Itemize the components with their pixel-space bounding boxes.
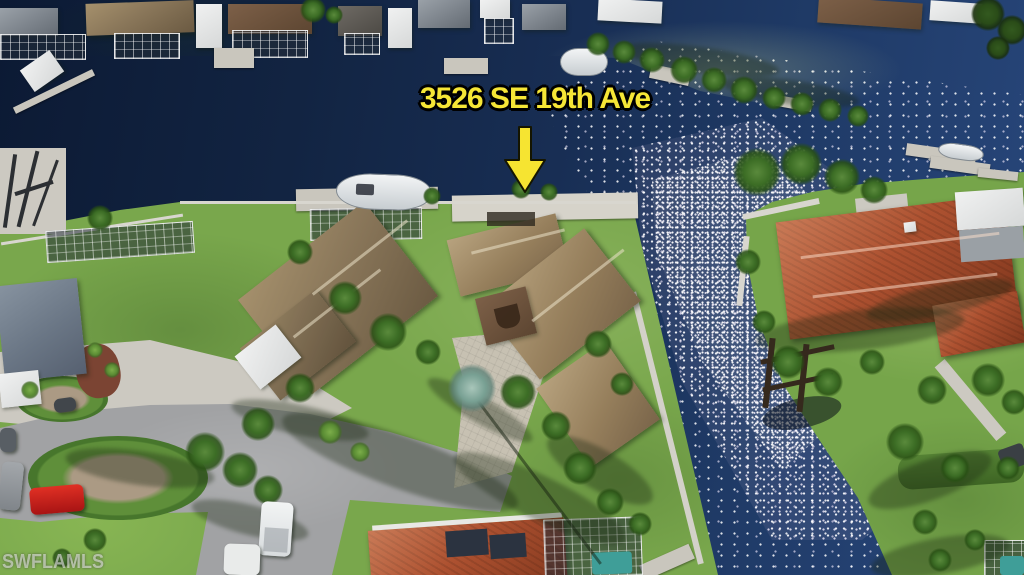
- palm-tree: [285, 373, 315, 403]
- palm-tree: [541, 411, 571, 441]
- palm-tree: [818, 98, 842, 122]
- palm-tree: [940, 453, 970, 483]
- palm-tree: [971, 363, 1005, 397]
- far-house: [196, 4, 222, 48]
- palm-tree: [369, 313, 407, 351]
- palm-tree: [847, 105, 869, 127]
- palm-tree: [886, 423, 924, 461]
- palm-tree: [185, 432, 225, 472]
- palm-tree: [912, 509, 938, 535]
- boat-windshield: [356, 184, 374, 196]
- palm-tree: [752, 310, 776, 334]
- palm-tree: [628, 512, 652, 536]
- palm-tree: [735, 249, 761, 275]
- palm-tree: [771, 345, 805, 379]
- far-house: [597, 0, 662, 24]
- far-house: [480, 0, 510, 18]
- far-house: [388, 8, 412, 48]
- palm-tree: [328, 281, 362, 315]
- white-van: [223, 543, 260, 575]
- palm-tree: [563, 451, 597, 485]
- location-arrow-icon: [503, 126, 547, 194]
- palm-tree: [964, 529, 986, 551]
- palm-tree: [500, 374, 536, 410]
- gray-roof-section: [959, 226, 1024, 262]
- palm-tree: [448, 364, 496, 412]
- far-house-roof: [418, 0, 470, 28]
- solar-panel: [445, 529, 489, 558]
- pool-screen-enclosure: [344, 33, 380, 55]
- palm-tree: [762, 86, 786, 110]
- dock: [444, 58, 488, 74]
- palm-tree: [859, 349, 885, 375]
- palm-tree: [670, 56, 698, 84]
- palm-tree: [824, 159, 860, 195]
- aerial-photo: 3526 SE 19th Ave SWFLAMLS: [0, 0, 1024, 575]
- palm-tree: [87, 205, 113, 231]
- palm-tree: [813, 367, 843, 397]
- swimming-pool: [1000, 556, 1024, 575]
- far-house-roof: [0, 8, 58, 36]
- truck-bed: [263, 527, 289, 553]
- white-roof-house: [955, 188, 1024, 231]
- palm-tree: [415, 339, 441, 365]
- far-house-roof: [85, 0, 194, 36]
- palm-tree: [730, 76, 758, 104]
- pool-screen-enclosure: [484, 18, 514, 44]
- shrub: [104, 362, 120, 378]
- palm-tree: [222, 452, 258, 488]
- far-house-roof: [522, 4, 566, 30]
- gray-roof-house: [0, 278, 87, 382]
- palm-tree: [586, 32, 610, 56]
- boat-lift: [214, 48, 254, 68]
- palm-tree: [596, 488, 624, 516]
- address-label: 3526 SE 19th Ave: [410, 84, 660, 114]
- palm-tree: [733, 148, 781, 196]
- palm-tree: [780, 143, 822, 185]
- shrub: [21, 381, 39, 399]
- dark-car: [0, 428, 16, 452]
- far-house-roof: [338, 6, 382, 36]
- palm-tree: [701, 67, 727, 93]
- shrub: [318, 420, 342, 444]
- palm-tree: [83, 528, 107, 552]
- palm-tree: [917, 375, 947, 405]
- shrub: [350, 442, 370, 462]
- mls-watermark: SWFLAMLS: [2, 552, 104, 572]
- palm-tree: [790, 92, 814, 116]
- red-car: [29, 484, 85, 516]
- palm-tree: [612, 40, 636, 64]
- palm-tree: [639, 47, 665, 73]
- palm-tree: [241, 407, 275, 441]
- palm-tree: [996, 456, 1020, 480]
- palm-tree: [423, 187, 441, 205]
- palm-tree: [986, 36, 1010, 60]
- chimney: [903, 221, 916, 232]
- pergola: [487, 212, 535, 226]
- palm-tree: [610, 372, 634, 396]
- palm-tree: [584, 330, 612, 358]
- palm-tree: [287, 239, 313, 265]
- palm-tree: [860, 176, 888, 204]
- palm-tree: [928, 548, 952, 572]
- pool-screen-enclosure: [114, 33, 180, 59]
- shrub: [87, 342, 103, 358]
- solar-panel: [489, 533, 527, 559]
- palm-tree: [1001, 389, 1024, 415]
- palm-tree: [325, 6, 343, 24]
